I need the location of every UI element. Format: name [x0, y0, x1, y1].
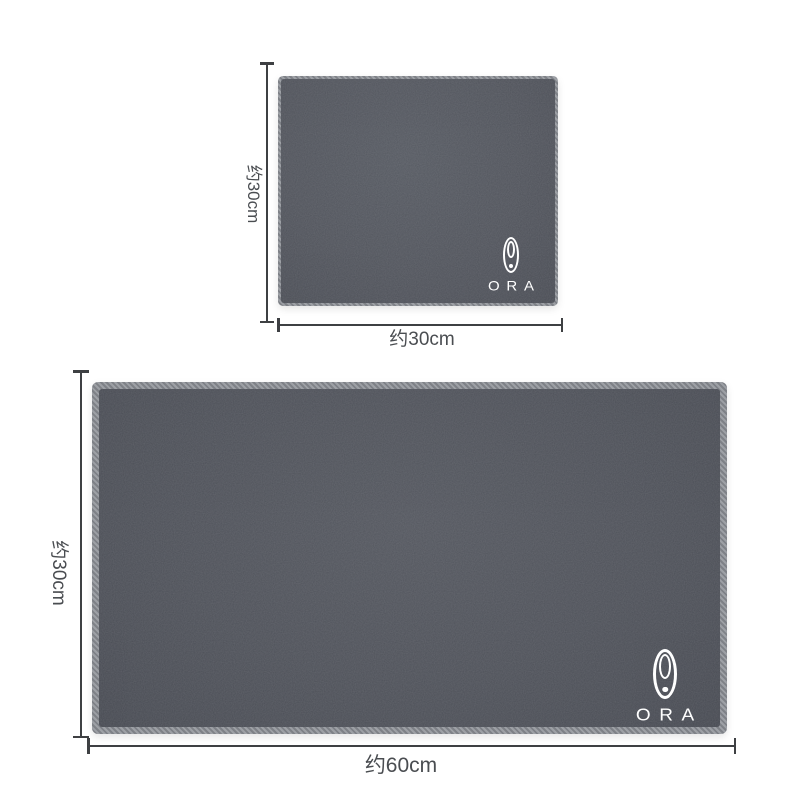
logo-inner-ellipse [659, 654, 671, 679]
small-towel-fabric: ORA [281, 79, 555, 303]
dimension-label-large-width: 约60cm [331, 754, 471, 780]
ora-logo-mark-icon [503, 237, 519, 273]
ora-logo-mark-icon [653, 649, 677, 699]
large-towel: ORA [92, 382, 727, 734]
product-image: ORA 约30cm 约30cm ORA 约30cm [0, 0, 800, 800]
large-towel-fabric: ORA [99, 389, 720, 727]
ora-logo: ORA [610, 649, 720, 727]
dimension-label-small-width: 约30cm [362, 330, 482, 352]
ora-wordmark: ORA [466, 279, 555, 295]
dimension-line-large-width [87, 738, 736, 754]
logo-inner-ellipse [507, 241, 515, 258]
dimension-label-large-height: 约30cm [44, 521, 68, 625]
logo-dot [509, 264, 513, 268]
small-towel: ORA [278, 76, 558, 306]
dimension-label-small-height: 约30cm [240, 149, 262, 239]
logo-dot [662, 687, 668, 693]
ora-wordmark: ORA [610, 706, 720, 726]
dimension-line-large-height [73, 370, 89, 738]
ora-logo: ORA [466, 237, 555, 295]
